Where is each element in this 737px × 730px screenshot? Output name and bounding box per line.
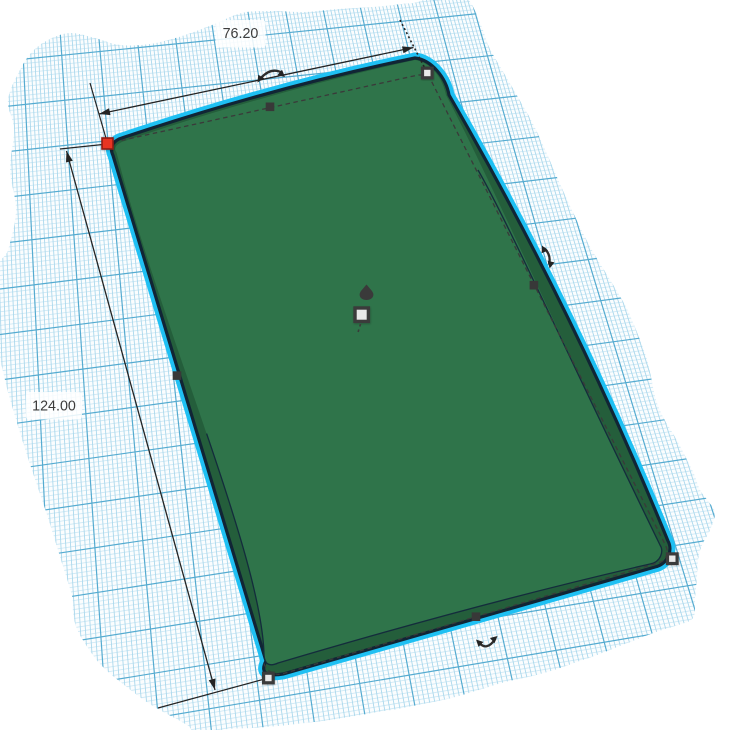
svg-text:76.20: 76.20 [223, 26, 259, 42]
svg-text:124.00: 124.00 [32, 399, 76, 415]
